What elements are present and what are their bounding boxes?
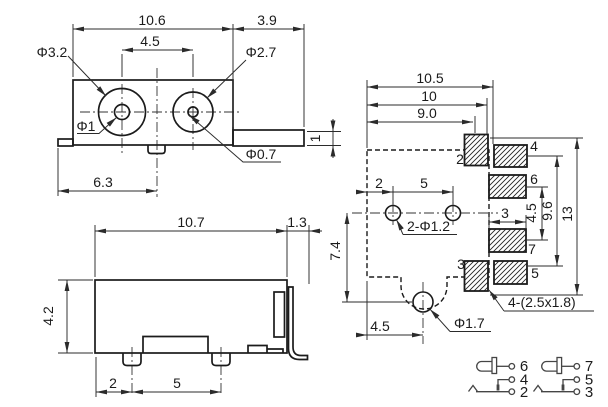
label-pin-4: 4 bbox=[530, 138, 538, 154]
dim-pcb-hole-offset: 2 bbox=[375, 175, 383, 191]
terminal-4 bbox=[509, 377, 515, 383]
side-bracket bbox=[248, 346, 283, 354]
terminal-6 bbox=[509, 364, 515, 370]
dim-pcb-width-inner: 9.0 bbox=[417, 105, 437, 121]
label-pcb-center-hole-dia: Φ1.7 bbox=[454, 315, 485, 331]
plug-tip-bar-left bbox=[492, 358, 497, 374]
dim-side-width: 10.7 bbox=[177, 214, 204, 230]
dim-front-hole-pitch: 4.5 bbox=[140, 33, 160, 49]
pad-4 bbox=[494, 145, 527, 167]
dim-pcb-width-mid: 10 bbox=[421, 88, 437, 104]
dim-front-width: 10.6 bbox=[138, 12, 165, 28]
pad-5 bbox=[494, 261, 527, 284]
schematic-right-unit bbox=[534, 358, 580, 395]
dim-side-foot-offset: 2 bbox=[109, 375, 117, 391]
label-pin-5: 5 bbox=[531, 265, 539, 281]
dim-pcb-total-height: 13 bbox=[559, 206, 575, 222]
side-body-outline bbox=[95, 280, 308, 366]
dim-front-right-inner-dia: Φ0.7 bbox=[246, 146, 277, 162]
dim-front-bottom: 6.3 bbox=[93, 174, 113, 190]
front-bottom-boss bbox=[148, 145, 165, 154]
schematic-left-unit bbox=[469, 358, 515, 395]
dim-front-pin-thickness: 1 bbox=[307, 134, 323, 142]
pad-6 bbox=[489, 175, 526, 198]
label-pin-7: 7 bbox=[528, 241, 536, 257]
label-pcb-holes: 2-Φ1.2 bbox=[407, 218, 450, 234]
pad-3 bbox=[465, 261, 489, 291]
side-rear-tab bbox=[274, 292, 285, 337]
side-arrowheads bbox=[65, 229, 320, 395]
dim-front-left-outer-dia: Φ3.2 bbox=[37, 44, 68, 60]
dim-front-pin-length: 3.9 bbox=[257, 12, 277, 28]
dim-pcb-hole-x: 4.5 bbox=[370, 318, 390, 334]
spring-contact-right bbox=[534, 386, 543, 392]
side-l-pin bbox=[289, 287, 308, 360]
schematic: 6 4 2 7 5 3 bbox=[469, 358, 594, 401]
label-pin-6: 6 bbox=[530, 171, 538, 187]
dim-front-left-inner-dia: Φ1 bbox=[77, 118, 96, 134]
dim-pcb-pad-length: 3 bbox=[501, 205, 509, 221]
label-pin-2: 2 bbox=[456, 151, 464, 167]
terminal-3 bbox=[574, 389, 580, 395]
pcb-view: 10.5 10 9.0 2 5 2-Φ1.2 7.4 3 4.5 Φ1.7 4-… bbox=[327, 70, 594, 344]
dim-pcb-depth: 7.4 bbox=[327, 241, 343, 261]
sch-label-2: 2 bbox=[520, 384, 528, 401]
side-bottom-notch bbox=[143, 337, 208, 354]
drawing-sheet: 10.6 3.9 4.5 Φ3.2 Φ2.7 Φ1 Φ0.7 6.3 1 bbox=[0, 0, 608, 407]
dim-pcb-hole-pitch: 5 bbox=[420, 175, 428, 191]
technical-drawing: 10.6 3.9 4.5 Φ3.2 Φ2.7 Φ1 Φ0.7 6.3 1 bbox=[0, 0, 608, 407]
front-body-outline bbox=[58, 80, 304, 154]
label-pin-3: 3 bbox=[457, 256, 465, 272]
dim-front-right-outer-dia: Φ2.7 bbox=[246, 44, 277, 60]
side-view: 10.7 1.3 4.2 2 5 bbox=[40, 214, 322, 397]
front-view: 10.6 3.9 4.5 Φ3.2 Φ2.7 Φ1 Φ0.7 6.3 1 bbox=[37, 12, 341, 197]
contact-point-right bbox=[562, 385, 565, 391]
front-side-pin bbox=[233, 130, 304, 146]
side-dimension-lines bbox=[58, 225, 322, 397]
contact-point-left bbox=[497, 385, 500, 391]
dim-pcb-pad-span: 9.6 bbox=[539, 201, 555, 221]
terminal-7 bbox=[574, 364, 580, 370]
dim-pcb-width-outer: 10.5 bbox=[416, 70, 443, 86]
pad-7 bbox=[489, 229, 526, 252]
dim-side-pin-length: 1.3 bbox=[287, 214, 307, 230]
dim-side-height: 4.2 bbox=[40, 306, 56, 326]
spring-contact-left bbox=[469, 386, 478, 392]
dim-pcb-pad-gap: 4.5 bbox=[523, 203, 539, 223]
dim-side-foot-pitch: 5 bbox=[173, 375, 181, 391]
front-left-tab bbox=[58, 139, 73, 146]
label-pcb-pad-size: 4-(2.5x1.8) bbox=[508, 294, 576, 310]
plug-tip-bar-right bbox=[557, 358, 562, 374]
terminal-2 bbox=[509, 389, 515, 395]
sch-label-3: 3 bbox=[585, 384, 593, 401]
terminal-5 bbox=[574, 377, 580, 383]
front-dimension-lines bbox=[58, 24, 341, 196]
pad-2 bbox=[465, 135, 489, 166]
